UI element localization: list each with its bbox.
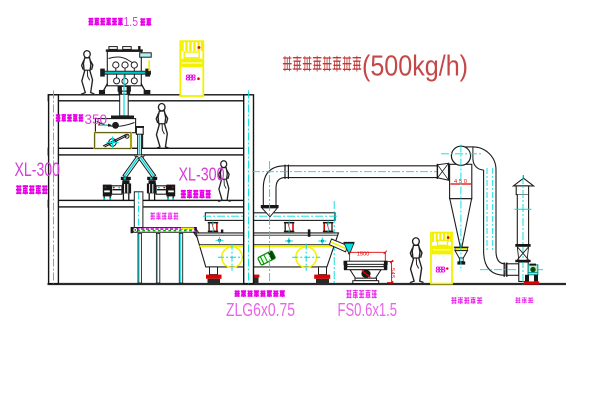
svg-text:888: 888 [186, 73, 197, 83]
svg-text:ZLG6x0.75: ZLG6x0.75 [226, 299, 295, 320]
svg-text:XL-300: XL-300 [15, 160, 61, 181]
svg-text:1.5: 1.5 [124, 15, 139, 29]
svg-text:(500kg/h): (500kg/h) [362, 51, 468, 83]
svg-text:1500: 1500 [357, 252, 370, 258]
svg-text:545: 545 [389, 268, 395, 278]
svg-text:350: 350 [85, 112, 108, 127]
svg-text:888: 888 [436, 266, 447, 275]
svg-text:XL-300: XL-300 [179, 164, 225, 185]
svg-text:FS0.6x1.5: FS0.6x1.5 [338, 299, 398, 320]
